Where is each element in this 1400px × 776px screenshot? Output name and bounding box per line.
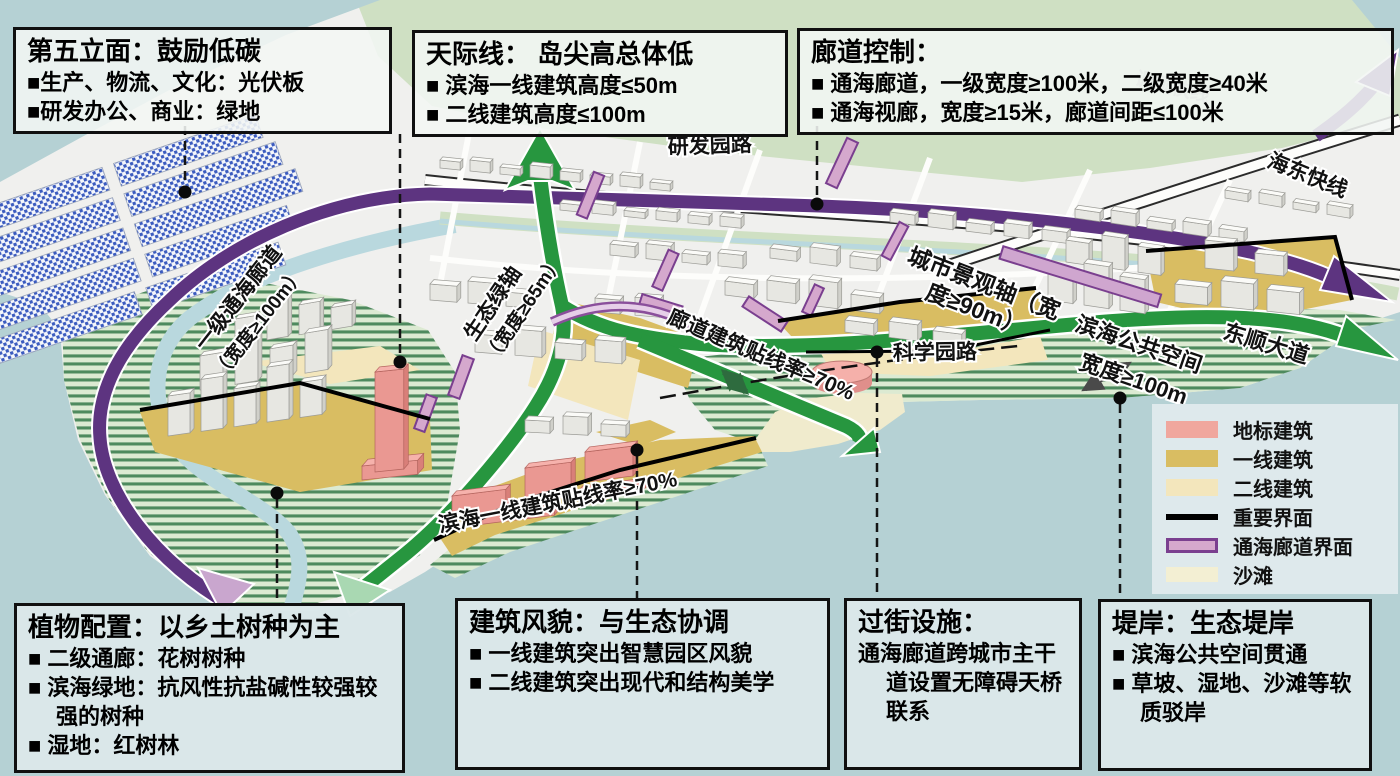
legend-item-corridor-interface: 通海廊道界面: [1166, 531, 1384, 560]
legend-item-beach: 沙滩: [1166, 560, 1384, 589]
legend-swatch: [1166, 538, 1218, 553]
note-box-crossing-facilities: 过街设施： 通海廊道跨城市主干道设置无障碍天桥联系: [844, 598, 1082, 770]
note-line: ■ 滨海公共空间贯通: [1112, 640, 1358, 669]
note-line: ■ 湿地：红树林: [28, 731, 391, 760]
legend-item-landmark: 地标建筑: [1166, 415, 1384, 444]
note-box-skyline: 天际线： 岛尖高总体低 ■ 滨海一线建筑高度≤50m ■ 二线建筑高度≤100m: [412, 30, 788, 137]
legend-item-interface: 重要界面: [1166, 502, 1384, 531]
note-line: ■生产、物流、文化：光伏板: [27, 68, 378, 97]
note-line: ■ 草坡、湿地、沙滩等软质驳岸: [1112, 669, 1358, 727]
note-line: ■ 滨海一线建筑高度≤50m: [426, 71, 774, 100]
map-label: 科学园路: [893, 340, 978, 365]
note-line: ■ 二线建筑高度≤100m: [426, 100, 774, 129]
note-box-embankment: 堤岸：生态堤岸 ■ 滨海公共空间贯通 ■ 草坡、湿地、沙滩等软质驳岸: [1098, 599, 1372, 771]
note-title: 建筑风貌：与生态协调: [469, 606, 816, 639]
note-line: ■ 二线建筑突出现代和结构美学: [469, 668, 816, 697]
legend-swatch: [1166, 421, 1218, 438]
note-title: 过街设施：: [858, 606, 1068, 639]
note-line: ■ 通海视廊，宽度≥15米，廊道间距≤100米: [811, 98, 1380, 127]
note-box-planting: 植物配置：以乡土树种为主 ■ 二级通廊：花树树种 ■ 滨海绿地：抗风性抗盐碱性较…: [14, 603, 405, 773]
legend-swatch: [1166, 450, 1218, 467]
note-line: ■ 一线建筑突出智慧园区风貌: [469, 639, 816, 668]
legend-swatch: [1166, 567, 1218, 582]
note-title: 第五立面：鼓励低碳: [27, 35, 378, 68]
note-line: ■研发办公、商业：绿地: [27, 97, 378, 126]
note-title: 天际线： 岛尖高总体低: [426, 38, 774, 71]
note-title: 廊道控制：: [811, 36, 1380, 69]
note-line: 通海廊道跨城市主干道设置无障碍天桥联系: [858, 639, 1068, 726]
note-box-architecture-style: 建筑风貌：与生态协调 ■ 一线建筑突出智慧园区风貌 ■ 二线建筑突出现代和结构美…: [455, 598, 830, 770]
planning-diagram: 调顺快线 研发园路 海东快线 一级通海廊道 （宽度≥100m） 生态绿轴 （宽度…: [0, 0, 1400, 776]
note-line: ■ 通海廊道，一级宽度≥100米，二级宽度≥40米: [811, 69, 1380, 98]
note-title: 植物配置：以乡土树种为主: [28, 611, 391, 644]
legend-swatch: [1166, 479, 1218, 496]
legend-item-frontline: 一线建筑: [1166, 444, 1384, 473]
note-box-fifth-facade: 第五立面：鼓励低碳 ■生产、物流、文化：光伏板 ■研发办公、商业：绿地: [13, 27, 392, 134]
note-line: ■ 滨海绿地：抗风性抗盐碱性较强较强的树种: [28, 673, 391, 731]
legend-swatch: [1166, 514, 1218, 520]
note-title: 堤岸：生态堤岸: [1112, 607, 1358, 640]
note-line: ■ 二级通廊：花树树种: [28, 644, 391, 673]
legend: 地标建筑 一线建筑 二线建筑 重要界面 通海廊道界面 沙滩: [1152, 404, 1398, 594]
note-box-corridor-control: 廊道控制： ■ 通海廊道，一级宽度≥100米，二级宽度≥40米 ■ 通海视廊，宽…: [797, 28, 1394, 135]
legend-item-secondline: 二线建筑: [1166, 473, 1384, 502]
